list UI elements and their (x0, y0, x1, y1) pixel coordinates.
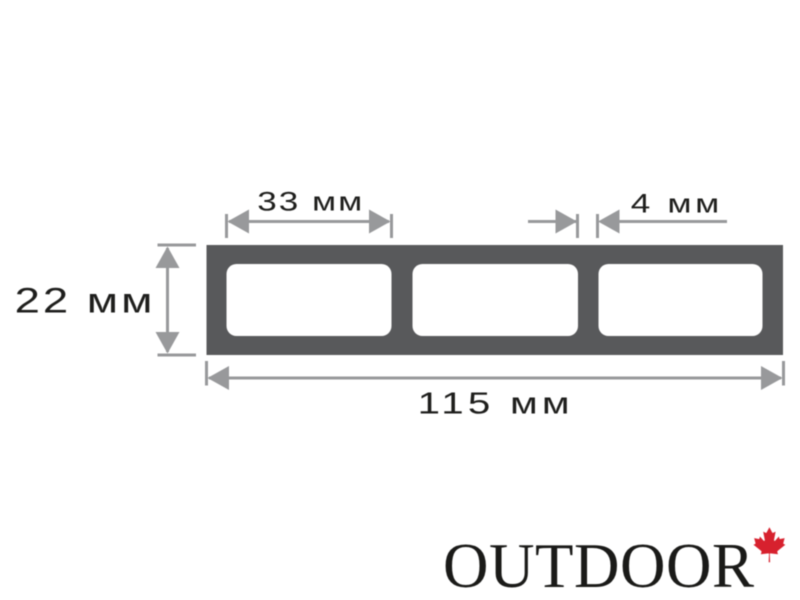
svg-text:22 мм: 22 мм (15, 281, 156, 321)
svg-text:115 мм: 115 мм (418, 385, 574, 420)
svg-text:33 мм: 33 мм (257, 186, 364, 216)
svg-text:4 мм: 4 мм (631, 188, 723, 218)
svg-text:OUTDOOR: OUTDOOR (443, 531, 755, 600)
